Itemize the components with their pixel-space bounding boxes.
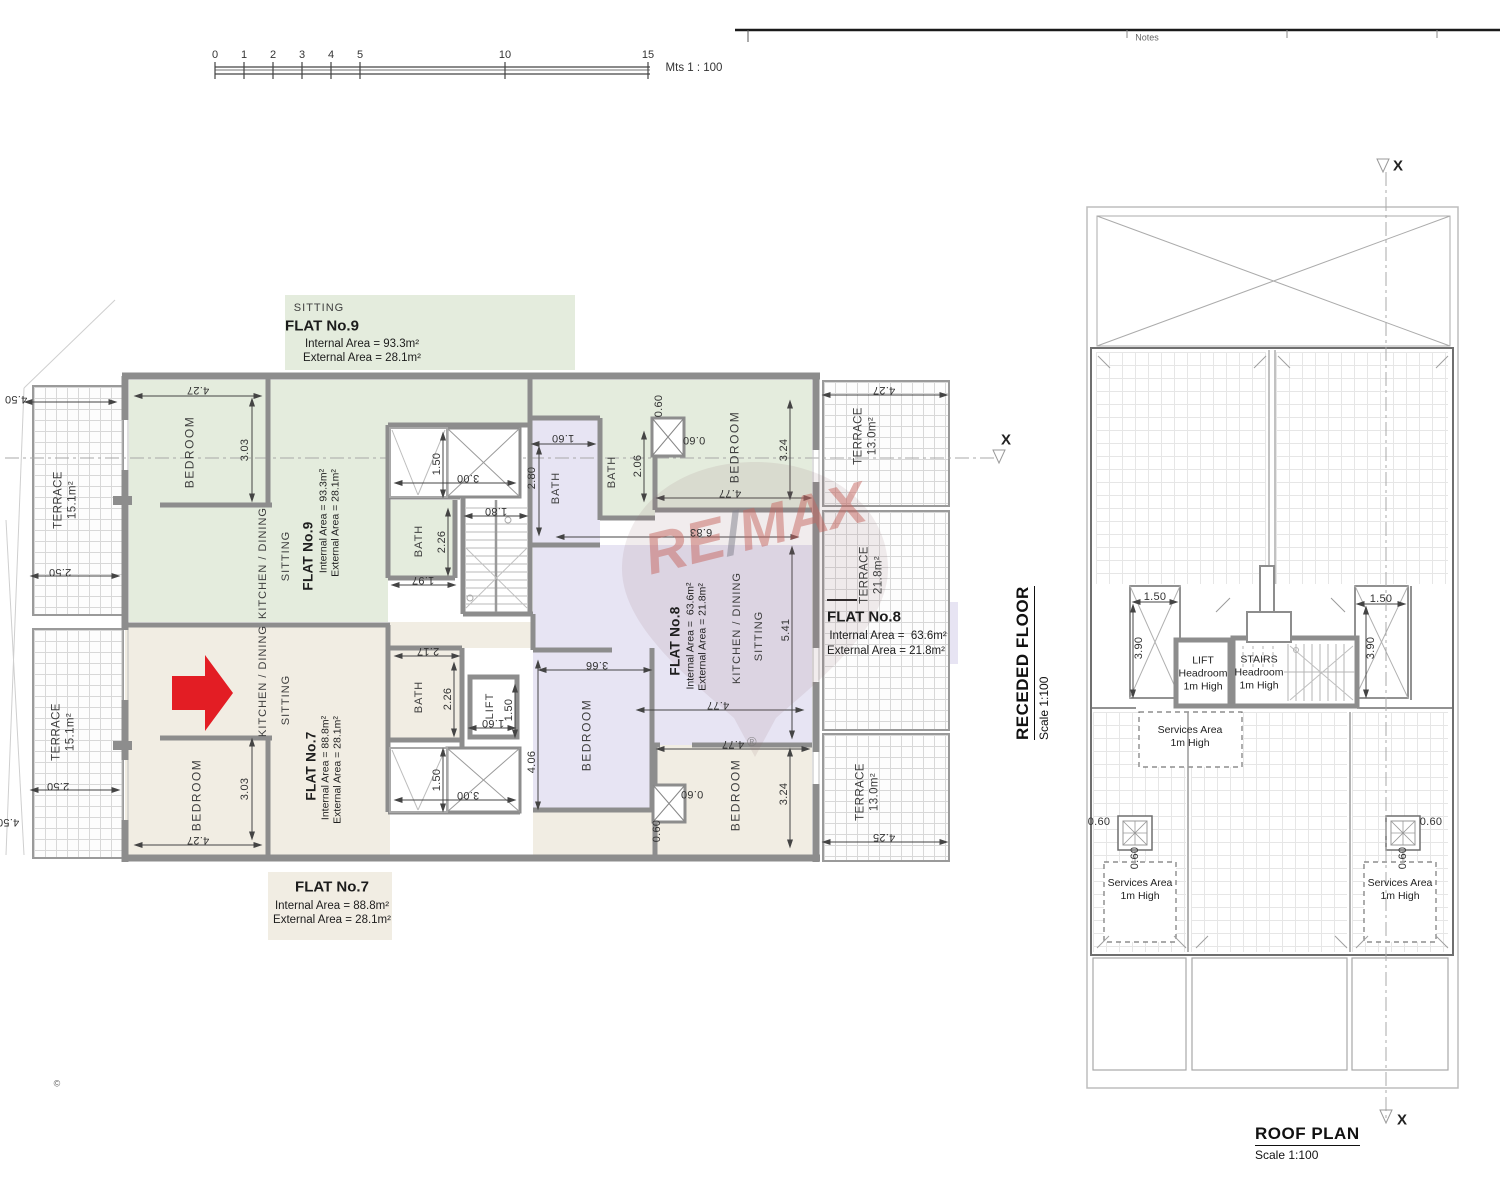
dim-206-bath9r: 2.06 [632,455,646,478]
dim-226-bath7: 2.26 [442,688,456,711]
roof-stairs-label: STAIRS Headroom 1m High [1234,653,1283,692]
room-sitting-flat9: SITTING [280,531,294,581]
scalebar-tick-4: 4 [328,49,334,63]
roof-dim-060-right-v: 0.60 [1397,847,1411,870]
flat9-box-internal: Internal Area = 93.3m² [305,337,419,351]
flat8-name-plan: FLAT No.8 [668,606,685,675]
room-bedroom-flat9-left: BEDROOM [183,416,198,489]
dim-303-bedroom9: 3.03 [239,439,253,462]
room-bedroom-flat7-left: BEDROOM [190,759,205,832]
flat9-box-name: FLAT No.9 [285,318,359,337]
flat9-name-plan: FLAT No.9 [301,521,318,590]
terrace-right-middle-label: TERRACE 21.8m² [858,546,887,604]
roof-plan-scale: Scale 1:100 [1255,1148,1360,1162]
roof-dim-060-right-h: 0.60 [1420,816,1443,830]
room-bedroom-flat8: BEDROOM [580,699,595,772]
flat7-name-plan: FLAT No.7 [304,731,321,800]
dim-150-shaft-top: 1.50 [431,453,445,476]
notes-label: Notes [1135,32,1159,43]
dim-250-terrace-bottom: 2.50 [47,778,70,792]
dim-541-flat8: 5.41 [780,619,794,642]
dim-060-shaft9-h: 0.60 [683,432,706,446]
flat7-box-external: External Area = 28.1m² [273,913,391,927]
roof-dim-060-left-v: 0.60 [1129,847,1143,870]
section-marker-x-roof-top: X [1393,158,1403,177]
dim-477-flat8-bottom: 4.77 [707,697,730,711]
room-bedroom-flat7-right: BEDROOM [729,759,744,832]
flat7-box-internal: Internal Area = 88.8m² [275,899,389,913]
dim-450-bottom-left: 4.50 [0,814,19,828]
section-marker-x-roof-bottom: X [1397,1112,1407,1131]
dim-425-terrace-rb: 4.25 [873,829,896,843]
dim-303-bedroom7: 3.03 [239,778,253,801]
dim-197-bath9: 1.97 [412,572,435,586]
dim-150-lift: 1.50 [503,699,517,722]
room-bedroom-flat9-right: BEDROOM [728,411,743,484]
flat8-box-name: FLAT No.8 [827,609,901,628]
room-bath-flat8: BATH [550,472,564,505]
scalebar-tick-2: 2 [270,49,276,63]
dim-160-bath8: 1.60 [552,430,575,444]
room-bath-flat9-mid: BATH [413,525,427,558]
terrace-left-bottom-label: TERRACE 15.1m² [50,703,79,761]
scalebar-tick-10: 10 [499,49,511,63]
copyright-mark: © [54,1078,61,1089]
dim-226-bath9: 2.26 [436,531,450,554]
roof-services-upper-label: Services Area 1m High [1158,724,1223,750]
dim-477-bedroom9r: 4.77 [719,485,742,499]
roof-dim-150-left: 1.50 [1144,591,1167,605]
dim-406-bedroom8: 4.06 [526,751,540,774]
section-marker-x-receded: X [1001,432,1011,451]
labels-layer: 0123451015Mts 1 : 100Notes©BEDROOMBEDROO… [0,0,1500,1200]
dim-060-shaft9-v: 0.60 [653,395,667,418]
room-kitchen-flat7: KITCHEN / DINING [257,625,271,737]
roof-plan-title-block: ROOF PLAN Scale 1:100 [1255,1124,1360,1162]
flat9-external-plan: External Area = 28.1m² [329,469,342,577]
dim-300-shaft-bottom: 3.00 [457,787,480,801]
scalebar-tick-5: 5 [357,49,363,63]
dim-683-flat8: 6.83 [690,524,713,538]
dim-324-bedroom9r: 3.24 [778,439,792,462]
room-bath-flat7: BATH [413,681,427,714]
roof-dim-060-left-h: 0.60 [1088,816,1111,830]
room-sitting-flat7: SITTING [280,675,294,725]
dim-450-top-left: 4.50 [5,391,28,405]
dim-217-bath7: 2.17 [417,643,440,657]
dim-060-shaft7-v: 0.60 [651,820,665,843]
roof-dim-390-left: 3.90 [1133,637,1147,660]
flat9-box-sitting: SITTING [294,302,344,316]
room-kitchen-flat9: KITCHEN / DINING [257,507,271,619]
scalebar-tick-0: 0 [212,49,218,63]
dim-180-stairs: 1.80 [485,503,508,517]
dim-060-shaft7-h: 0.60 [681,786,704,800]
room-sitting-flat8: SITTING [753,611,767,661]
receded-floor-title-block: RECEDED FLOOR Scale 1:100 [1013,540,1057,740]
dim-250-terrace-top: 2.50 [49,564,72,578]
roof-dim-390-right: 3.90 [1365,637,1379,660]
roof-services-right-label: Services Area 1m High [1368,877,1433,903]
dim-427-terrace-rt: 4.27 [873,382,896,396]
dim-427-bedroom9: 4.27 [187,382,210,396]
dim-324-bedroom7r: 3.24 [778,783,792,806]
room-bath-flat9-right: BATH [606,456,620,489]
roof-plan-title: ROOF PLAN [1255,1124,1360,1146]
scalebar-unit: Mts 1 : 100 [666,61,723,75]
terrace-right-bottom-label: TERRACE 13.0m² [854,763,883,821]
flat8-box-internal: Internal Area = 63.6m² [829,629,946,643]
dim-150-shaft-bottom: 1.50 [431,769,445,792]
room-kitchen-flat8: KITCHEN / DINING [731,572,745,684]
terrace-right-top-label: TERRACE 13.0m² [852,407,881,465]
scalebar-tick-1: 1 [241,49,247,63]
flat7-box-name: FLAT No.7 [295,879,369,898]
dim-160-lift: 1.60 [482,715,505,729]
flat7-external-plan: External Area = 28.1m² [331,716,344,824]
flat9-box-external: External Area = 28.1m² [303,351,421,365]
roof-lift-label: LIFT Headroom 1m High [1178,654,1227,693]
receded-floor-title: RECEDED FLOOR [1013,586,1035,740]
terrace-left-top-label: TERRACE 15.1m² [52,471,81,529]
flat8-external-plan: External Area = 21.8m² [696,583,709,691]
receded-floor-scale: Scale 1:100 [1037,677,1051,740]
dim-366-bedroom8: 3.66 [586,657,609,671]
dim-427-bedroom7: 4.27 [187,832,210,846]
drawing-sheet: RE/MAX ® 0123451015Mts 1 : 100Notes©BEDR… [0,0,1500,1200]
scalebar-tick-3: 3 [299,49,305,63]
dim-300-shaft-top: 3.00 [457,470,480,484]
dim-280-bath8: 2.80 [526,467,540,490]
roof-dim-150-right: 1.50 [1370,593,1393,607]
flat8-box-external: External Area = 21.8m² [827,644,945,658]
dim-477-bedroom7r: 4.77 [722,736,745,750]
roof-services-left-label: Services Area 1m High [1108,877,1173,903]
scalebar-tick-15: 15 [642,49,654,63]
